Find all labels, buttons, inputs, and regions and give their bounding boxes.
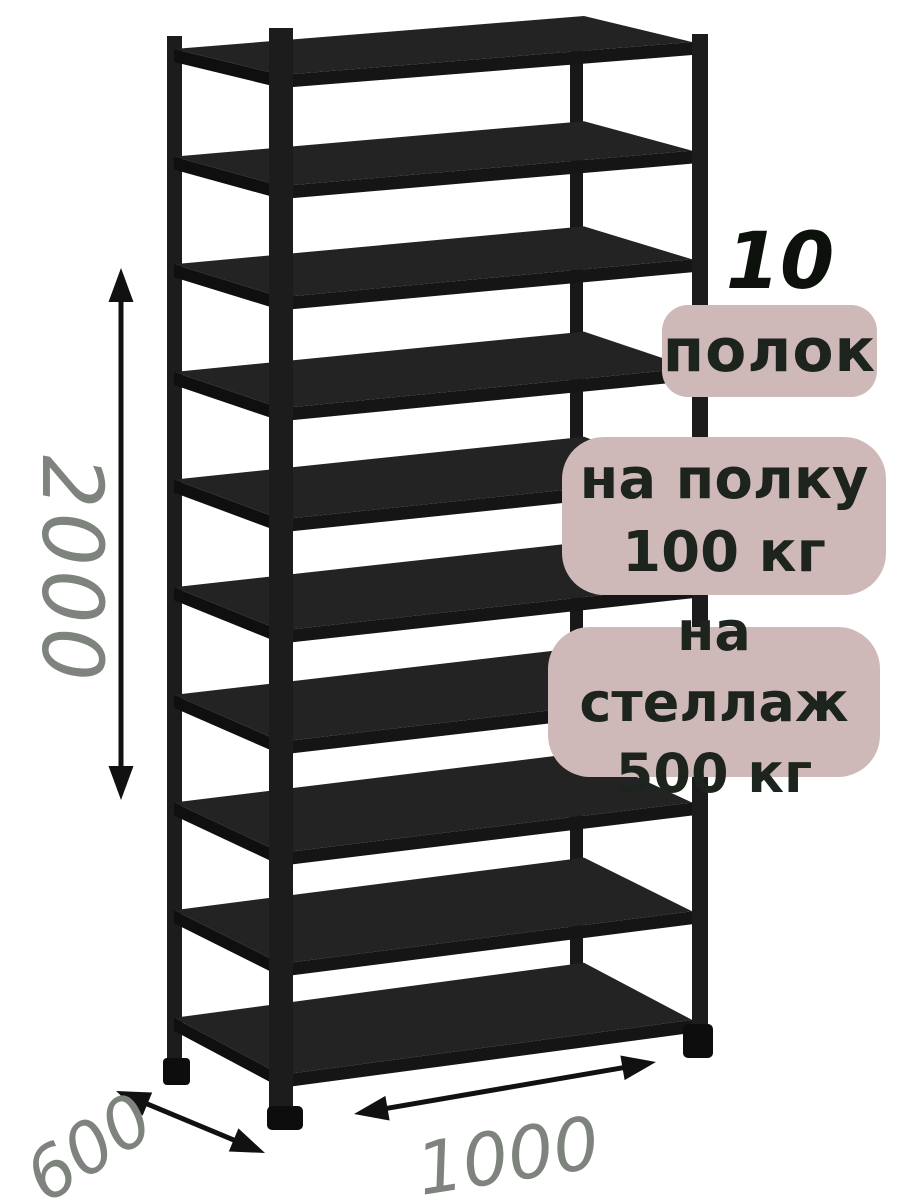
shelf-load-line1: на полку: [580, 443, 869, 516]
height-dimension-label: 2000: [22, 430, 122, 710]
rack-load-line2: 500 кг: [616, 738, 812, 809]
shelf-count-badge: полок: [662, 305, 877, 397]
rack-load-badge: на стеллаж 500 кг: [548, 627, 880, 777]
shelf-count-number: 10: [700, 216, 860, 308]
product-image: 10 полок на полку 100 кг на стеллаж 500 …: [0, 0, 900, 1200]
rack-load-line1: на стеллаж: [548, 596, 880, 738]
shelf-count-label: полок: [663, 316, 877, 386]
shelf-load-line2: 100 кг: [622, 516, 826, 589]
shelf-load-badge: на полку 100 кг: [562, 437, 886, 595]
